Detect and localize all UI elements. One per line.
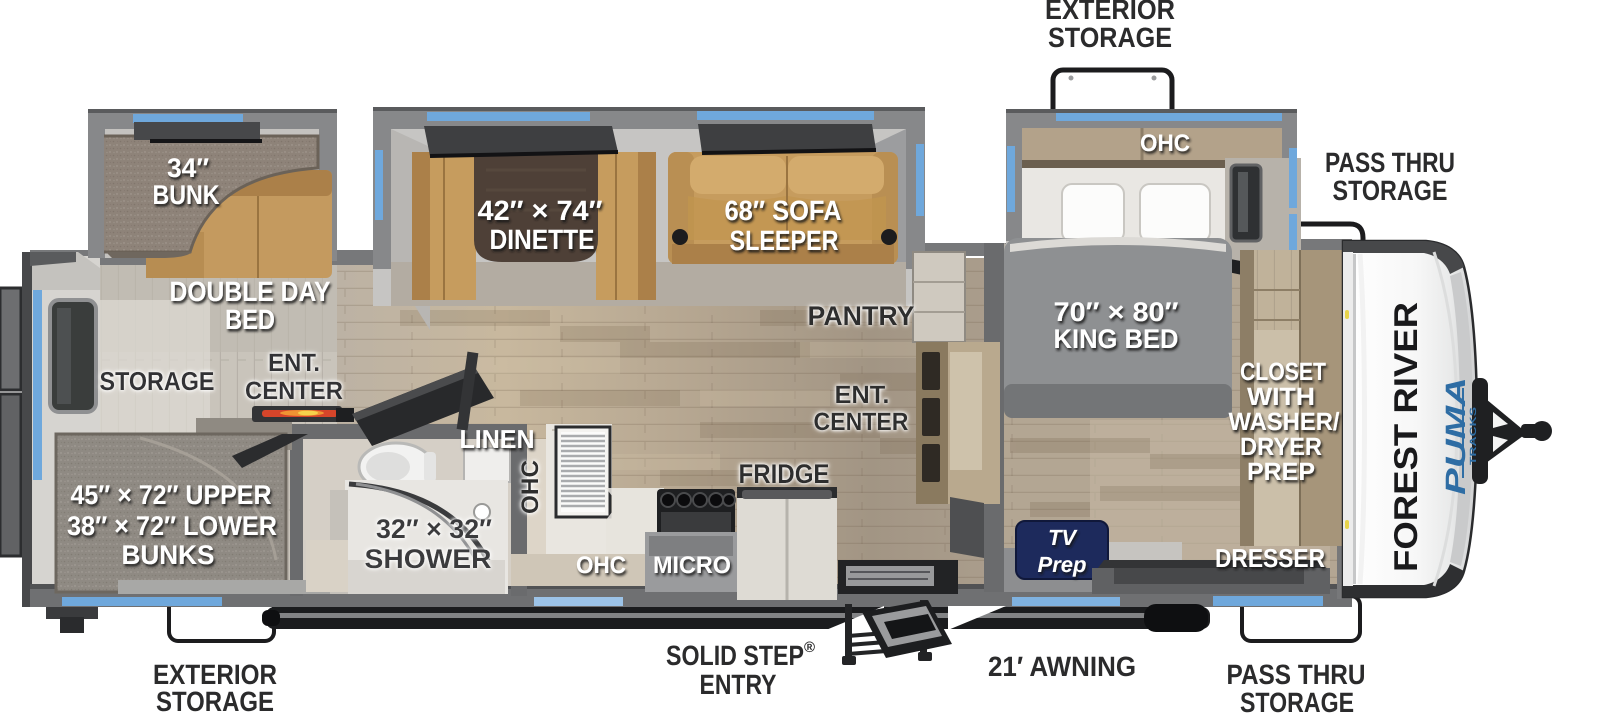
svg-text:STORAGE: STORAGE — [1240, 687, 1354, 718]
svg-text:PREP: PREP — [1247, 458, 1315, 486]
svg-text:45″ × 72″ UPPER: 45″ × 72″ UPPER — [71, 480, 272, 510]
svg-text:FOREST RIVER: FOREST RIVER — [1387, 302, 1424, 572]
svg-text:STORAGE: STORAGE — [100, 366, 215, 396]
svg-text:Prep: Prep — [1038, 552, 1087, 577]
svg-text:STORAGE: STORAGE — [1333, 175, 1448, 206]
svg-text:ENT.: ENT. — [835, 381, 890, 409]
svg-text:ENTRY: ENTRY — [700, 669, 777, 700]
svg-text:70″ × 80″: 70″ × 80″ — [1054, 297, 1179, 327]
svg-text:68″ SOFA: 68″ SOFA — [725, 195, 842, 226]
svg-text:32″ × 32″: 32″ × 32″ — [376, 514, 492, 544]
svg-text:KING BED: KING BED — [1054, 324, 1179, 354]
svg-text:STORAGE: STORAGE — [156, 686, 274, 717]
svg-text:PASS THRU: PASS THRU — [1325, 147, 1455, 178]
svg-text:PUMA: PUMA — [1440, 377, 1471, 495]
svg-text:21′ AWNING: 21′ AWNING — [988, 651, 1136, 682]
svg-text:CLOSET: CLOSET — [1240, 358, 1326, 386]
svg-text:MICRO: MICRO — [653, 552, 731, 579]
svg-text:OHC: OHC — [1140, 130, 1190, 157]
svg-text:SOLID STEP: SOLID STEP — [666, 640, 804, 671]
svg-text:BED: BED — [225, 304, 275, 335]
svg-text:TRACKS: TRACKS — [1468, 407, 1478, 465]
svg-text:SLEEPER: SLEEPER — [730, 225, 839, 256]
svg-text:38″ × 72″ LOWER: 38″ × 72″ LOWER — [67, 511, 277, 541]
svg-text:DRESSER: DRESSER — [1215, 543, 1325, 573]
svg-text:DRYER: DRYER — [1240, 433, 1322, 461]
svg-text:PASS THRU: PASS THRU — [1227, 659, 1366, 690]
svg-text:42″ × 74″: 42″ × 74″ — [478, 195, 603, 226]
svg-text:DOUBLE DAY: DOUBLE DAY — [170, 276, 331, 307]
svg-text:LINEN: LINEN — [460, 424, 535, 454]
svg-text:PANTRY: PANTRY — [808, 301, 915, 331]
svg-text:ENT.: ENT. — [268, 349, 320, 377]
svg-text:TV: TV — [1048, 525, 1078, 550]
svg-text:DINETTE: DINETTE — [490, 224, 595, 255]
svg-text:WASHER/: WASHER/ — [1229, 408, 1340, 436]
svg-text:WITH: WITH — [1247, 383, 1315, 411]
svg-text:34″: 34″ — [167, 153, 209, 183]
svg-text:SHOWER: SHOWER — [365, 544, 492, 574]
svg-text:CENTER: CENTER — [814, 408, 909, 436]
svg-text:®: ® — [804, 639, 815, 656]
svg-text:BUNK: BUNK — [153, 180, 220, 210]
svg-text:STORAGE: STORAGE — [1048, 22, 1172, 53]
svg-text:BUNKS: BUNKS — [122, 540, 215, 570]
svg-text:CENTER: CENTER — [245, 377, 343, 405]
svg-text:FRIDGE: FRIDGE — [739, 459, 830, 489]
svg-text:OHC: OHC — [576, 552, 626, 579]
svg-text:OHC: OHC — [517, 460, 544, 514]
